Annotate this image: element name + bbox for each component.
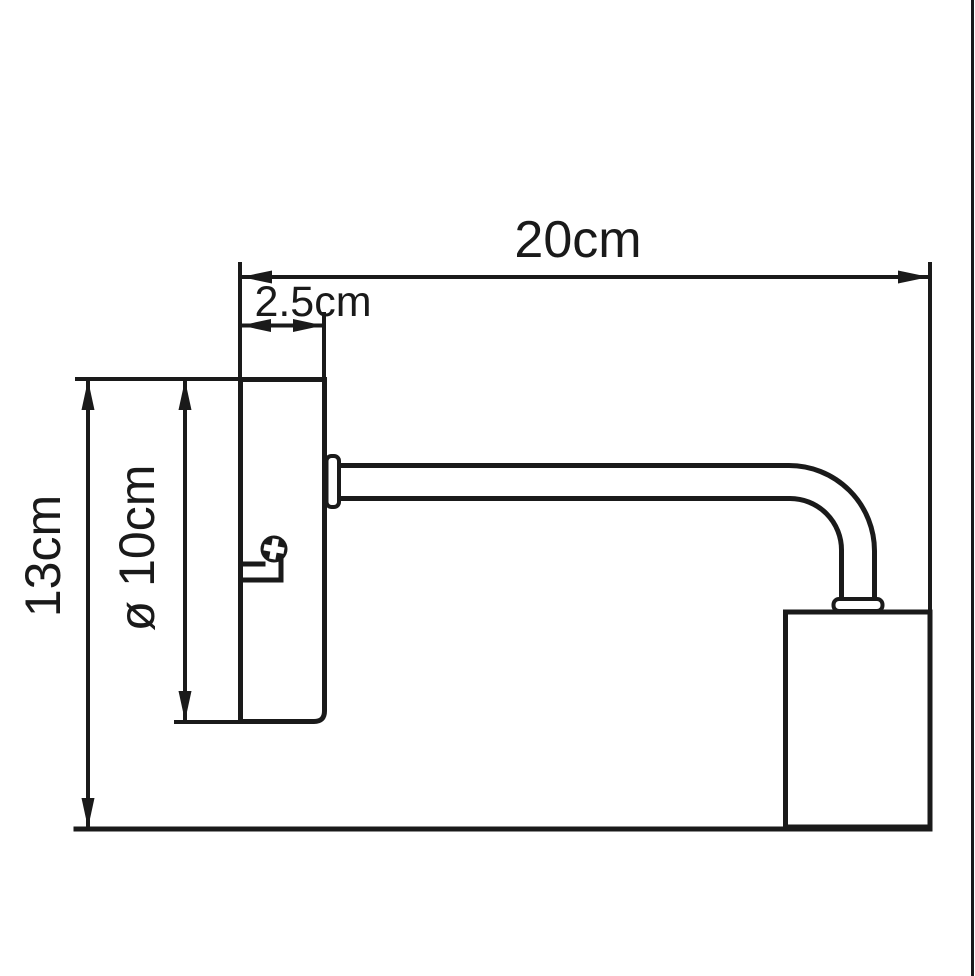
plate-thickness-label: 2.5cm [254,278,371,326]
arm-collar [834,599,883,611]
dimension-total-width: 20cm [240,211,930,612]
arrowhead-down-icon [82,798,95,828]
total-width-label: 20cm [514,211,641,269]
lamp-holder-body [786,612,931,827]
total-height-label: 13cm [15,495,71,617]
arrowhead-right-icon [898,271,929,284]
arrowhead-up-icon [179,380,192,410]
dimension-plate-thickness: 2.5cm [240,278,372,377]
lamp-head [786,599,931,827]
wall-lamp-technical-drawing: 20cm 2.5cm 13cm ø 10cm [0,0,975,976]
wall-plate [241,380,325,722]
arm-tube-outer-line [338,466,875,601]
lamp-arm [327,456,875,600]
plate-diameter-label: ø 10cm [109,465,165,632]
arrowhead-up-icon [82,380,95,410]
mounting-screw-icon [261,536,288,563]
arrowhead-down-icon [179,691,192,721]
dimension-plate-diameter: ø 10cm [109,380,242,722]
technical-drawing-page: 20cm 2.5cm 13cm ø 10cm [0,0,975,976]
arm-tube-inner-line [338,499,842,601]
arm-mount-bracket [327,456,340,507]
